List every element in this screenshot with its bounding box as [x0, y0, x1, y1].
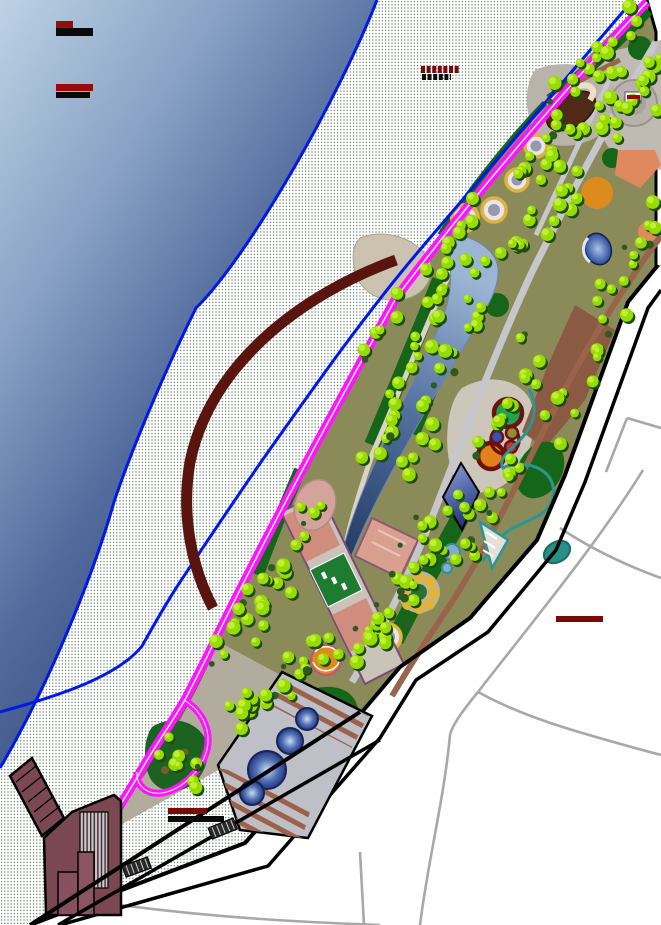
tree-icon: [486, 510, 492, 516]
district-label: [556, 616, 603, 622]
tree-icon: [353, 626, 359, 632]
tree-icon: [398, 542, 403, 547]
tree-icon: [404, 619, 412, 627]
park-masterplan-map: [0, 0, 661, 925]
tree-icon: [547, 99, 553, 105]
tree-icon: [195, 764, 201, 770]
waterbody-label-2: [56, 84, 93, 98]
tree-icon: [431, 382, 437, 388]
tree-icon: [374, 602, 380, 608]
masterplan-drawing: [0, 0, 661, 925]
tree-icon: [450, 368, 458, 376]
tree-icon: [622, 245, 627, 250]
tree-icon: [209, 661, 215, 667]
orange-plaza: [581, 177, 613, 209]
tree-icon: [362, 356, 369, 363]
tree-icon: [605, 331, 612, 338]
tree-icon: [472, 452, 480, 460]
tree-icon: [389, 571, 396, 578]
tree-icon: [268, 564, 275, 571]
tree-icon: [413, 515, 419, 521]
tree-icon: [281, 664, 287, 670]
plaza-building-marker: [627, 95, 640, 99]
tree-icon: [303, 666, 311, 674]
small-pond: [442, 563, 452, 573]
tree-icon: [386, 432, 394, 440]
tree-icon: [400, 594, 409, 603]
tree-icon: [301, 521, 306, 526]
